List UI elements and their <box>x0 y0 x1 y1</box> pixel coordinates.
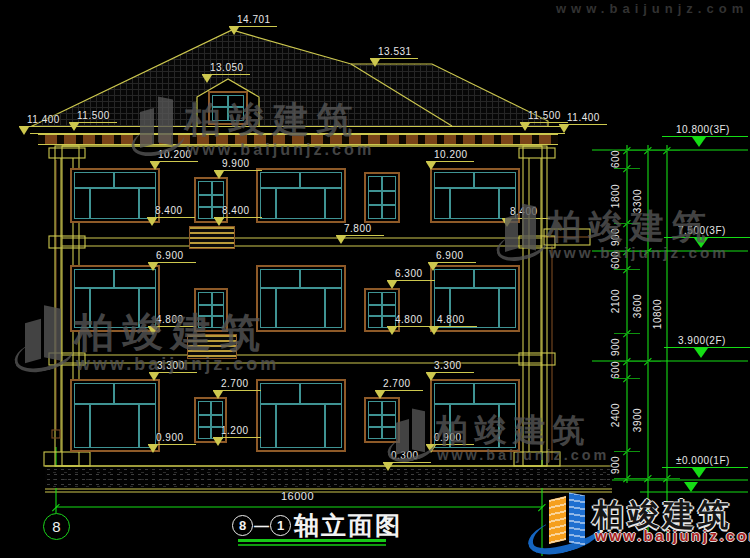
window-mullion <box>261 403 341 405</box>
elevation-value: 10.200 <box>434 149 468 160</box>
elevation-value: 6.900 <box>156 250 184 261</box>
elevation-triangle <box>202 75 212 83</box>
window-mullion <box>435 403 515 405</box>
dim-extension <box>614 333 640 334</box>
window-frame-outer <box>256 265 346 332</box>
dim-text: 900 <box>610 338 621 356</box>
elevation-triangle <box>214 218 224 226</box>
window-mullion <box>473 270 475 287</box>
watermark-building-icon <box>503 203 542 254</box>
window-mullion <box>299 270 301 287</box>
drawing-title: 8 — 1 轴立面图 <box>232 509 402 542</box>
dim-tick <box>52 504 60 512</box>
elevation-triangle <box>148 263 158 271</box>
elevation-triangle <box>387 327 397 335</box>
elevation-triangle <box>383 463 393 471</box>
window-mullion <box>199 304 223 306</box>
title-underline <box>238 539 386 542</box>
window-mullion <box>275 403 277 447</box>
level-triangle <box>684 482 698 492</box>
elevation-triangle <box>229 27 239 35</box>
watermark-building-icon <box>22 305 68 365</box>
watermark-building-icon <box>394 408 431 456</box>
title-underline-secondary <box>238 544 386 546</box>
dim-text: 3900 <box>632 407 643 431</box>
elevation-value: 9.900 <box>222 158 250 169</box>
title-text: 轴立面图 <box>294 509 402 542</box>
level-triangle <box>692 468 706 478</box>
elevation-triangle <box>370 59 380 67</box>
window-mullion <box>299 384 301 403</box>
title-axis-end-bubble: 1 <box>270 515 291 536</box>
dim-extension <box>614 378 640 379</box>
axis-grid-bubble-8: 8 <box>43 513 70 540</box>
window-mullion <box>113 173 115 187</box>
brand-url-text: www.baijunjz.com <box>595 527 750 544</box>
brand-building-icon <box>533 488 597 550</box>
window-frame-inner <box>260 269 342 328</box>
window-mullion <box>75 287 155 289</box>
balcony-rail-panel <box>189 226 235 249</box>
level-value: 3.900(2F) <box>678 335 726 346</box>
elevation-value: 11.500 <box>528 110 561 121</box>
cad-elevation-drawing: 14.70113.53113.05011.40011.50011.50011.4… <box>0 0 750 558</box>
window-mullion <box>381 293 383 327</box>
window-mullion <box>199 206 223 208</box>
dim-text: 1800 <box>610 183 621 207</box>
window-mullion <box>138 403 140 447</box>
window-mullion <box>210 402 212 438</box>
window-mullion <box>113 384 115 403</box>
dim-extension <box>614 168 640 169</box>
elevation-triangle <box>426 373 436 381</box>
watermark-text: 柏竣建筑 <box>74 312 269 352</box>
elevation-triangle <box>428 263 438 271</box>
elevation-triangle <box>520 123 530 131</box>
elevation-triangle <box>214 171 224 179</box>
window-mullion <box>324 287 326 327</box>
generated-annotations: 14.70113.53113.05011.40011.50011.50011.4… <box>0 0 750 558</box>
elevation-triangle <box>213 438 223 446</box>
window-mullion <box>369 414 395 416</box>
plinth-speckle-band <box>45 467 612 488</box>
window-mullion <box>261 187 341 189</box>
window-frame-inner <box>74 383 156 448</box>
window-frame-inner <box>198 181 224 219</box>
window-mullion <box>498 287 500 327</box>
level-triangle <box>694 348 708 358</box>
dim-extension <box>654 150 680 151</box>
elevation-triangle <box>375 391 385 399</box>
watermark-text: 柏竣建筑 <box>436 414 592 446</box>
dim-text: 600 <box>610 150 621 168</box>
window-frame-outer <box>256 168 346 223</box>
elevation-value: 4.800 <box>437 314 465 325</box>
window-mullion <box>199 194 223 196</box>
elevation-value: 11.500 <box>77 110 110 121</box>
level-value: ±0.000(1F) <box>676 455 730 466</box>
dim-text: 600 <box>610 360 621 378</box>
window-mullion <box>199 414 222 416</box>
dim-text: 3600 <box>632 294 643 318</box>
elevation-triangle <box>336 236 346 244</box>
overall-dim-text: 16000 <box>281 490 314 502</box>
elevation-triangle <box>19 127 29 135</box>
window-frame-inner <box>368 401 396 439</box>
logo-building-orange <box>549 496 566 544</box>
dim-extension <box>614 269 640 270</box>
level-triangle <box>692 137 706 147</box>
elevation-triangle <box>387 281 397 289</box>
window-frame-inner <box>198 401 223 439</box>
window-frame-outer <box>364 172 400 223</box>
level-value: 10.800(3F) <box>676 124 730 135</box>
window-mullion <box>75 403 155 405</box>
elevation-value: 13.531 <box>378 46 412 57</box>
watermark-text: 柏竣建筑 <box>547 209 713 243</box>
watermark-url: www.baijunjz.com <box>437 447 609 463</box>
elevation-triangle <box>147 218 157 226</box>
window-mullion <box>113 270 115 287</box>
elevation-triangle <box>148 445 158 453</box>
dim-text: 2100 <box>610 289 621 313</box>
window-mullion <box>261 287 341 289</box>
window-mullion <box>498 187 500 219</box>
window-mullion <box>381 177 383 218</box>
window-mullion <box>381 402 383 438</box>
elevation-value: 11.400 <box>567 112 600 123</box>
window-frame-inner <box>74 172 156 219</box>
elevation-value: 8.400 <box>222 205 250 216</box>
title-axis-separator: — <box>254 517 269 534</box>
elevation-value: 7.800 <box>344 223 372 234</box>
window-mullion <box>473 173 475 187</box>
window-mullion <box>89 187 91 219</box>
elevation-value: 3.300 <box>434 360 462 371</box>
watermark-building-icon <box>138 96 179 150</box>
dim-extension <box>635 361 661 362</box>
window-frame-outer <box>70 168 160 223</box>
watermark-url: www.baijunjz.com <box>549 244 729 262</box>
dim-text: 900 <box>610 455 621 473</box>
elevation-value: 13.050 <box>210 62 244 73</box>
watermark-url: www.baijunjz.com <box>187 140 375 159</box>
window-mullion <box>435 287 515 289</box>
window-mullion <box>369 315 395 317</box>
elevation-value: 2.700 <box>221 378 249 389</box>
watermark-url: www.baijunjz.com <box>76 354 279 375</box>
window-frame-inner <box>260 172 342 219</box>
window-mullion <box>199 426 222 428</box>
elevation-value: 2.700 <box>383 378 411 389</box>
window-mullion <box>473 384 475 403</box>
window-frame-outer <box>256 379 346 452</box>
window-mullion <box>299 173 301 187</box>
window-mullion <box>75 187 155 189</box>
elevation-triangle <box>150 162 160 170</box>
title-axis-start-bubble: 8 <box>232 515 253 536</box>
watermark-text: 柏竣建筑 <box>185 102 361 138</box>
window-mullion <box>324 187 326 219</box>
window-mullion <box>369 304 395 306</box>
window-mullion <box>435 187 515 189</box>
watermark-partial-top: www.baijunjz.com <box>556 1 748 16</box>
window-mullion <box>449 187 451 219</box>
window-frame-inner <box>368 292 396 328</box>
logo-building-blue <box>569 492 585 545</box>
elevation-triangle <box>429 327 439 335</box>
window-mullion <box>138 187 140 219</box>
elevation-value: 0.900 <box>156 432 184 443</box>
dim-text: 2400 <box>610 402 621 426</box>
elevation-triangle <box>559 125 569 133</box>
window-mullion <box>89 403 91 447</box>
window-frame-inner <box>368 176 396 219</box>
elevation-value: 4.800 <box>395 314 423 325</box>
elevation-value: 6.900 <box>436 250 464 261</box>
window-mullion <box>275 187 277 219</box>
elevation-triangle <box>213 391 223 399</box>
elevation-value: 11.400 <box>27 114 60 125</box>
window-mullion <box>324 403 326 447</box>
elevation-triangle <box>69 123 79 131</box>
elevation-value: 1.200 <box>221 425 249 436</box>
window-frame-inner <box>260 383 342 448</box>
window-mullion <box>275 287 277 327</box>
elevation-triangle <box>426 162 436 170</box>
dim-text: 10800 <box>652 299 663 329</box>
window-mullion <box>369 426 395 428</box>
dim-extension <box>614 451 640 452</box>
window-mullion <box>211 182 213 218</box>
elevation-value: 8.400 <box>155 205 183 216</box>
window-mullion <box>369 190 395 192</box>
elevation-value: 14.701 <box>237 14 271 25</box>
elevation-value: 6.300 <box>395 268 423 279</box>
window-mullion <box>369 204 395 206</box>
dim-extension <box>654 478 680 479</box>
window-frame-outer <box>70 379 160 452</box>
